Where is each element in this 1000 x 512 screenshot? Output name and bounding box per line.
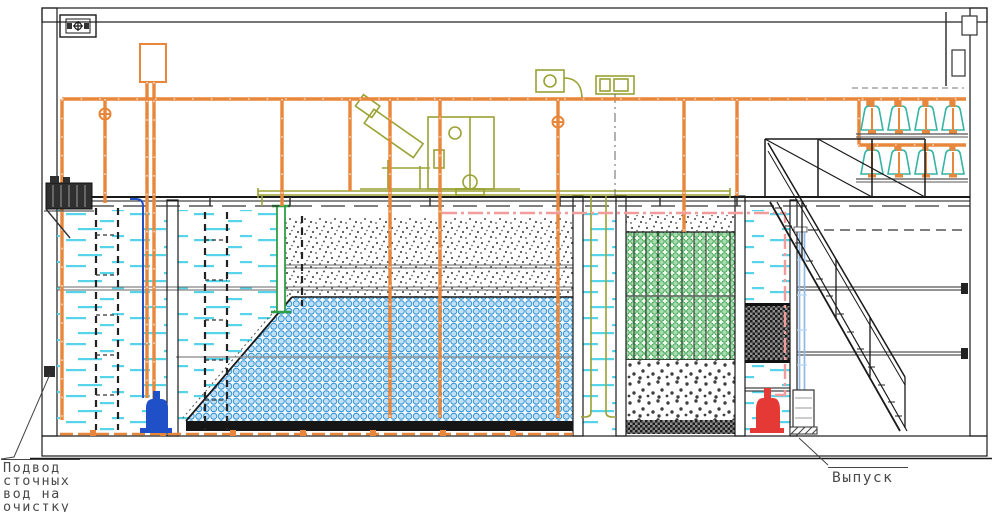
leader-line <box>1 374 50 459</box>
outlet-annotation: Выпуск <box>799 438 908 486</box>
outlet-riser-pipe <box>790 227 817 434</box>
aeration-header-bar <box>186 421 573 431</box>
treatment-plant-section-drawing: Подвод сточных вод на очистку Выпуск <box>0 0 1000 512</box>
mesh-block <box>745 305 790 362</box>
valve <box>100 109 111 120</box>
pipe-pedestal <box>793 390 814 428</box>
blower-units <box>536 70 634 196</box>
outlet-label: Выпуск <box>832 470 893 486</box>
floor-slab <box>42 436 987 456</box>
ventilation-unit <box>60 15 96 37</box>
valve <box>553 117 564 128</box>
screen-unit <box>350 95 520 195</box>
inlet-label-line4: очистку <box>3 499 70 512</box>
coarse-gravel-layer <box>626 360 735 420</box>
drainage-grid <box>626 420 735 434</box>
leader-line <box>799 438 828 465</box>
wall-accessories <box>946 12 977 86</box>
gravel-layer <box>285 218 573 297</box>
air-vessel <box>140 44 166 82</box>
biofilter-stack <box>626 215 735 434</box>
transfer-channel-water <box>583 210 616 433</box>
